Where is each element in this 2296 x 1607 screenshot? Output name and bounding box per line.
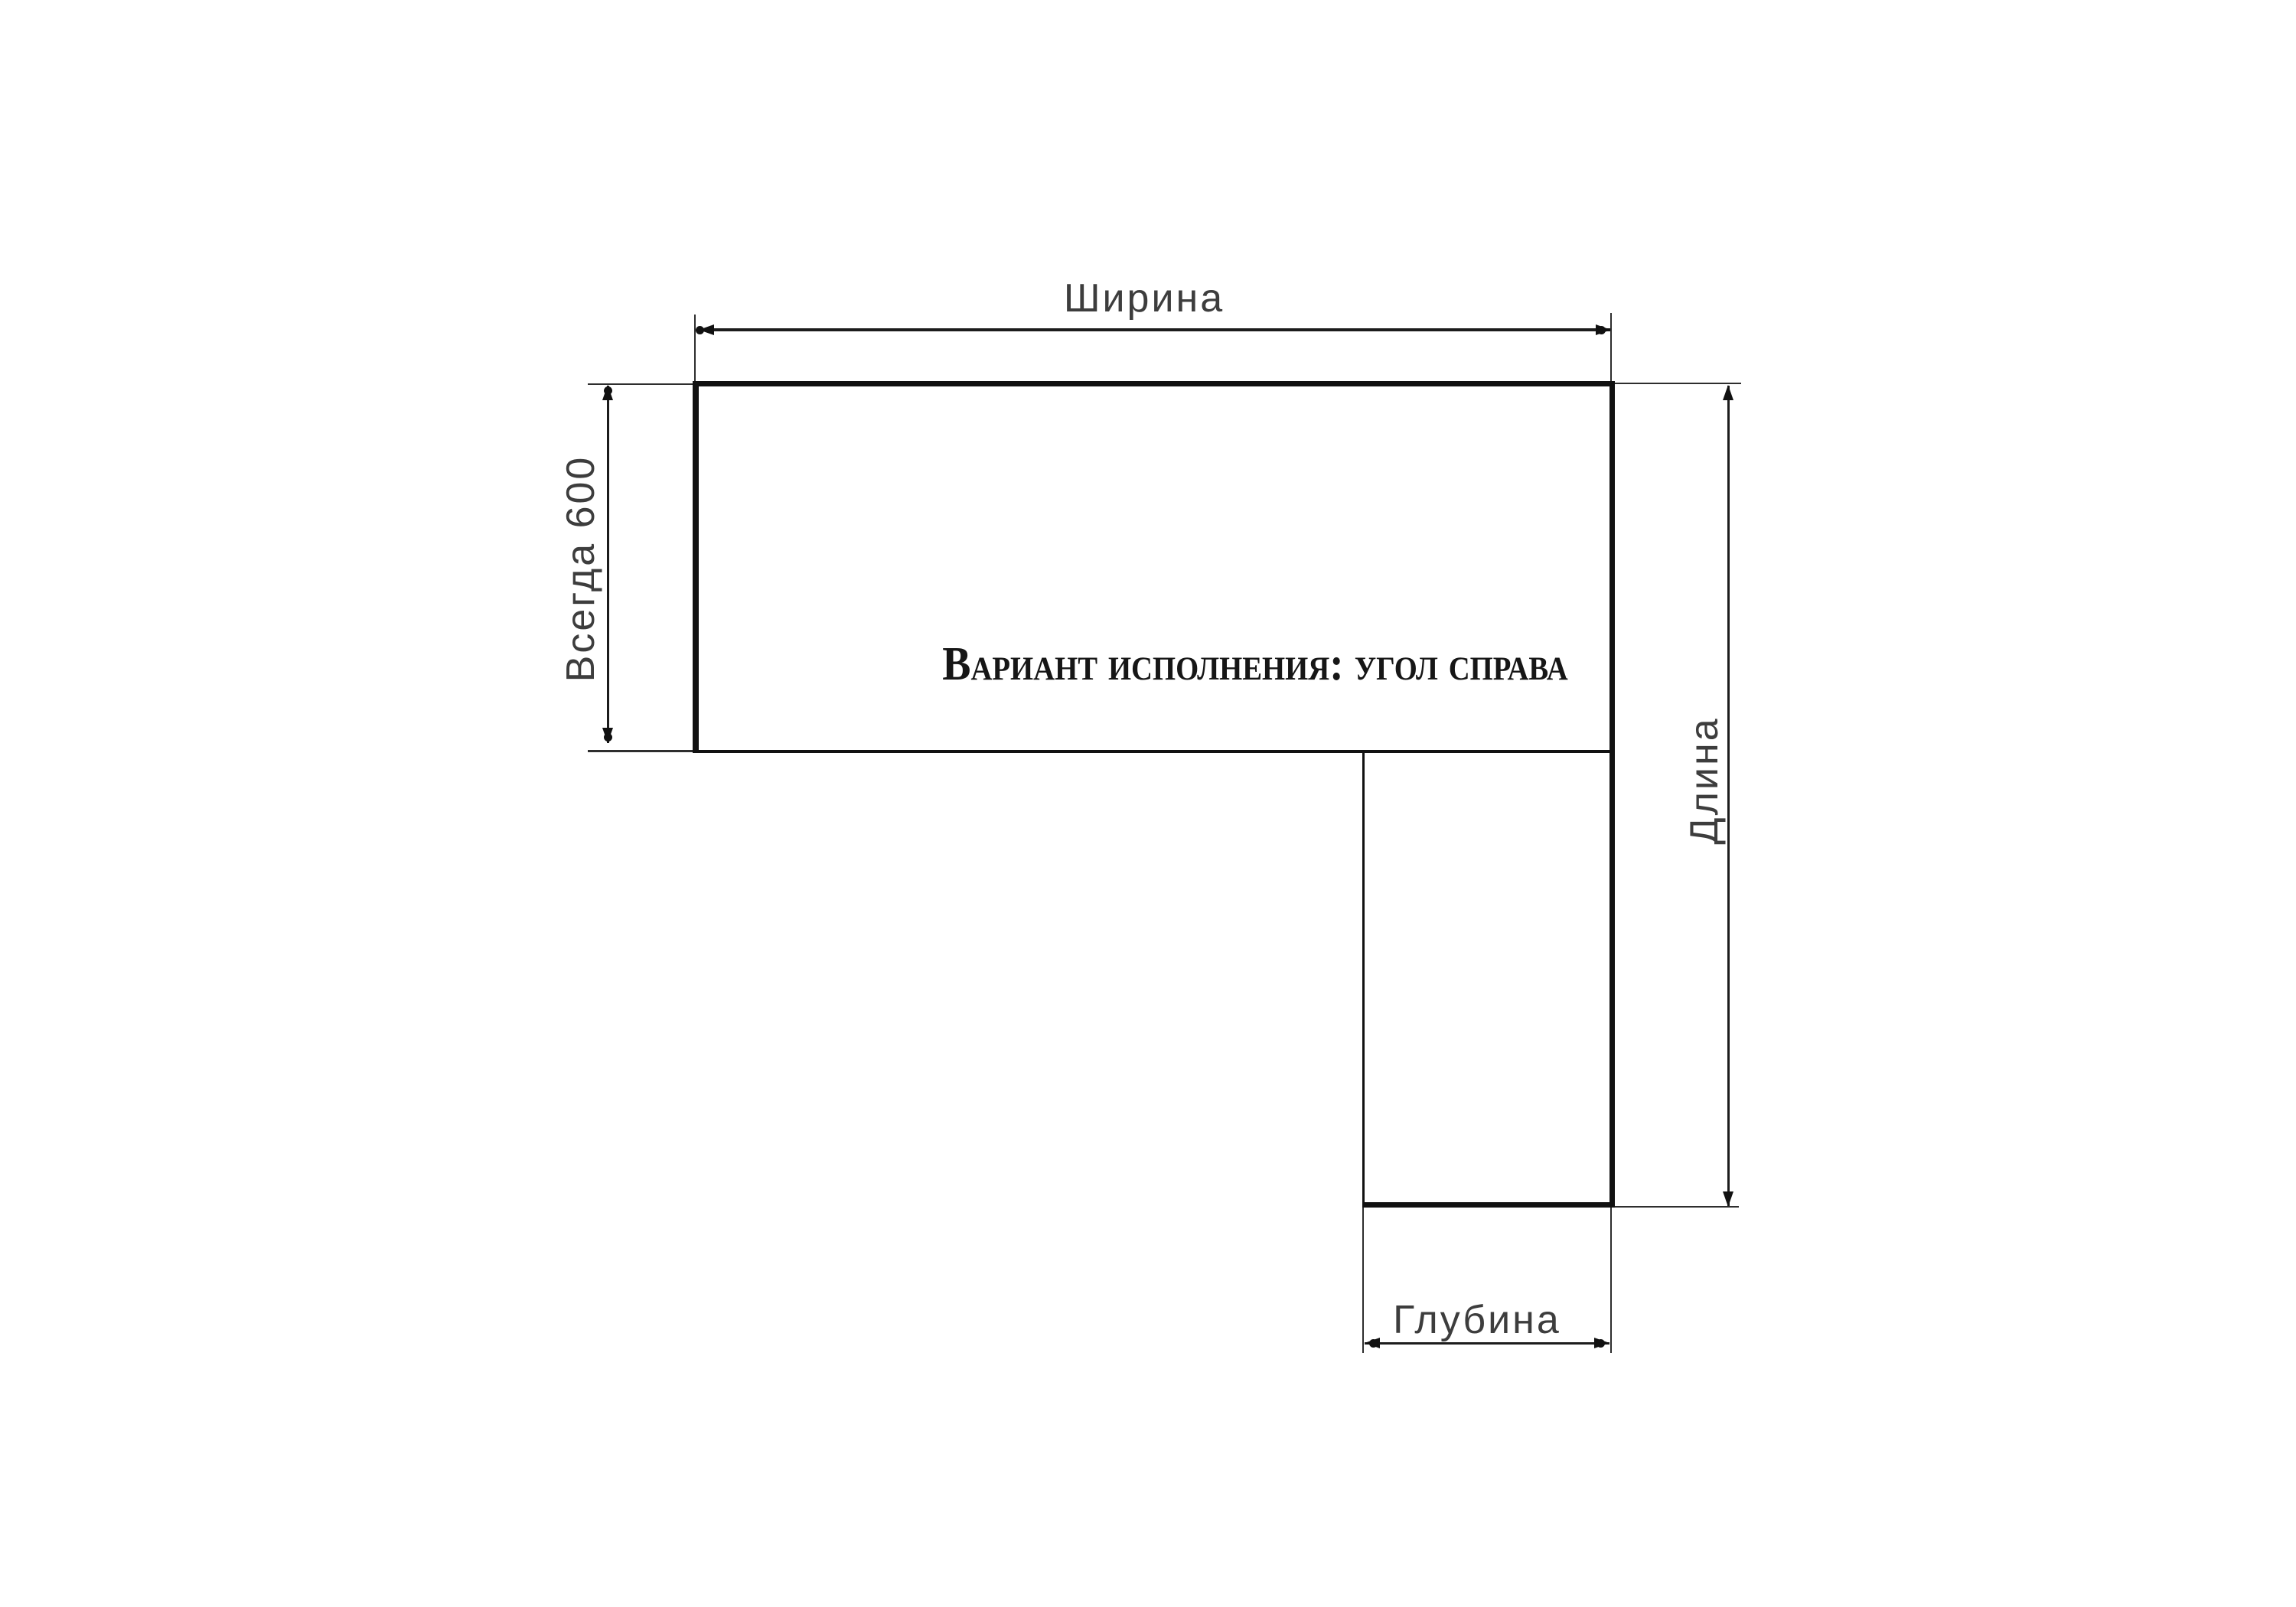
length-dimension-label: Длина (1681, 589, 1724, 972)
always-600-dimension-line (607, 386, 609, 743)
always-600-dimension-label: Всегда 600 (558, 377, 601, 760)
always-600-arrow-dot-bottom (604, 733, 612, 742)
length-arrow-top-icon (1723, 385, 1733, 400)
length-extension-line-bottom (1615, 1206, 1739, 1208)
drawing-canvas: Ширина Всегда 600 Длина Глубина Вариант … (0, 0, 2296, 1607)
worktop-corner-leg-outline (1362, 753, 1615, 1208)
length-arrow-bottom-icon (1723, 1191, 1733, 1207)
variant-title: Вариант исполнения: угол справа (911, 639, 1600, 689)
width-arrow-dot-right (1597, 326, 1606, 334)
depth-dimension-label: Глубина (1324, 1297, 1630, 1343)
always-600-extension-line-bottom (588, 750, 693, 752)
width-dimension-line (699, 328, 1611, 331)
length-dimension-line (1727, 386, 1730, 1207)
worktop-main-outline (693, 381, 1615, 753)
length-extension-line-top (1615, 383, 1741, 384)
width-extension-line-right (1610, 313, 1612, 381)
width-arrow-dot-left (696, 326, 704, 334)
always-600-arrow-dot-top (604, 386, 612, 395)
width-dimension-label: Ширина (991, 275, 1297, 321)
width-extension-line-left (694, 315, 696, 381)
